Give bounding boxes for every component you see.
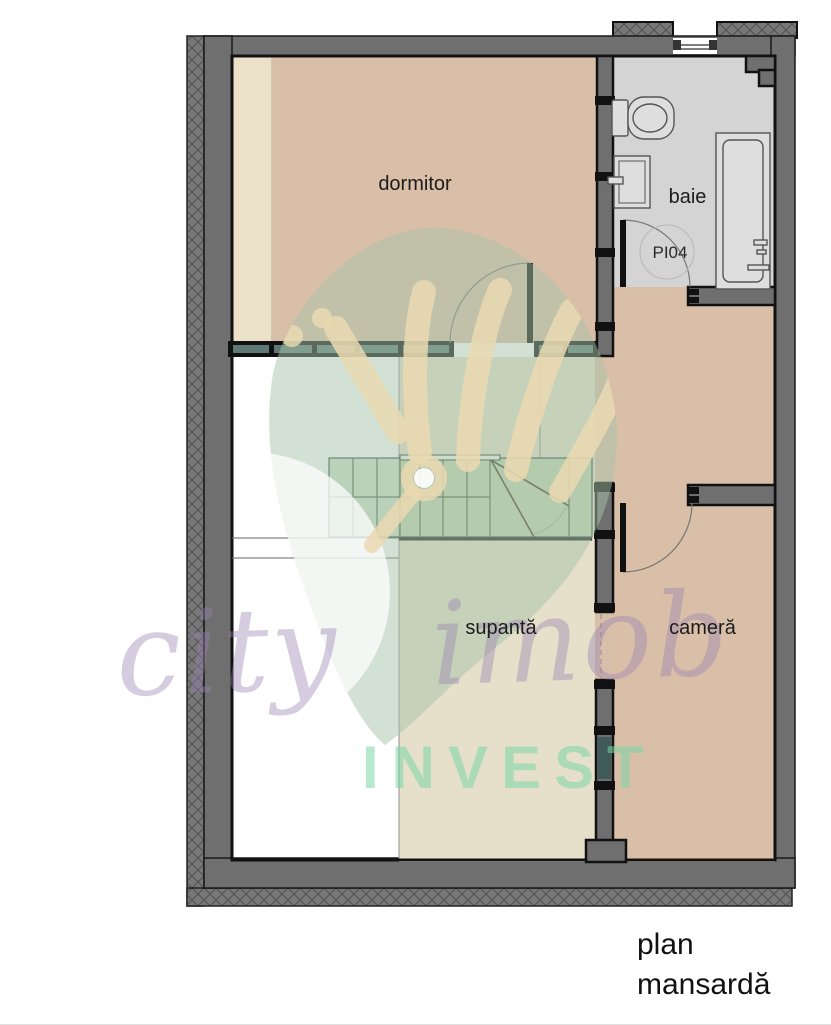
- wall-nub: [688, 496, 699, 503]
- wall-nub: [594, 680, 615, 689]
- camera-top-wall: [688, 485, 775, 505]
- left-wall: [204, 36, 232, 888]
- landing-lower-fill: [590, 356, 775, 485]
- glazed-segment: [598, 737, 611, 779]
- fingertip-dot: [312, 308, 332, 328]
- wall-nub: [594, 603, 615, 612]
- floorplan-page: city imob INVEST dormitor baie PI04 supa…: [0, 0, 831, 1025]
- wall-nub: [688, 487, 699, 494]
- room-dormitor-strip: [232, 56, 272, 343]
- wall-nub: [594, 726, 615, 735]
- baie-window-icon: [673, 38, 717, 54]
- wall-nub: [595, 248, 615, 257]
- door-code-label: PI04: [630, 243, 710, 263]
- room-label-dormitor: dormitor: [330, 173, 500, 196]
- floorplan-drawing: [0, 0, 831, 1024]
- room-label-camera: cameră: [630, 617, 775, 640]
- wall-nub: [688, 297, 699, 303]
- door-leaf-baie: [620, 220, 626, 287]
- wall-nub: [594, 781, 615, 790]
- bathtub-icon: [716, 133, 770, 289]
- door-leaf-camera: [620, 503, 626, 572]
- caption-line-2: mansardă: [637, 965, 770, 1005]
- bottom-wall: [204, 858, 795, 888]
- toilet-icon: [612, 97, 674, 139]
- wall-nub: [595, 322, 615, 331]
- room-label-supanta: supantă: [430, 617, 572, 640]
- wall-nub: [688, 289, 699, 295]
- wall-nub: [594, 530, 615, 539]
- leaf-crescent-cut: [110, 452, 390, 732]
- bottom-insulation-strip: [187, 888, 792, 906]
- caption-line-1: plan: [637, 925, 770, 965]
- left-insulation-strip: [187, 36, 204, 906]
- plan-caption: plan mansardă: [637, 925, 770, 1005]
- palm-dot: [414, 468, 434, 488]
- pillar: [586, 840, 626, 862]
- room-label-baie: baie: [640, 186, 735, 209]
- baie-bottom-wall: [688, 287, 775, 305]
